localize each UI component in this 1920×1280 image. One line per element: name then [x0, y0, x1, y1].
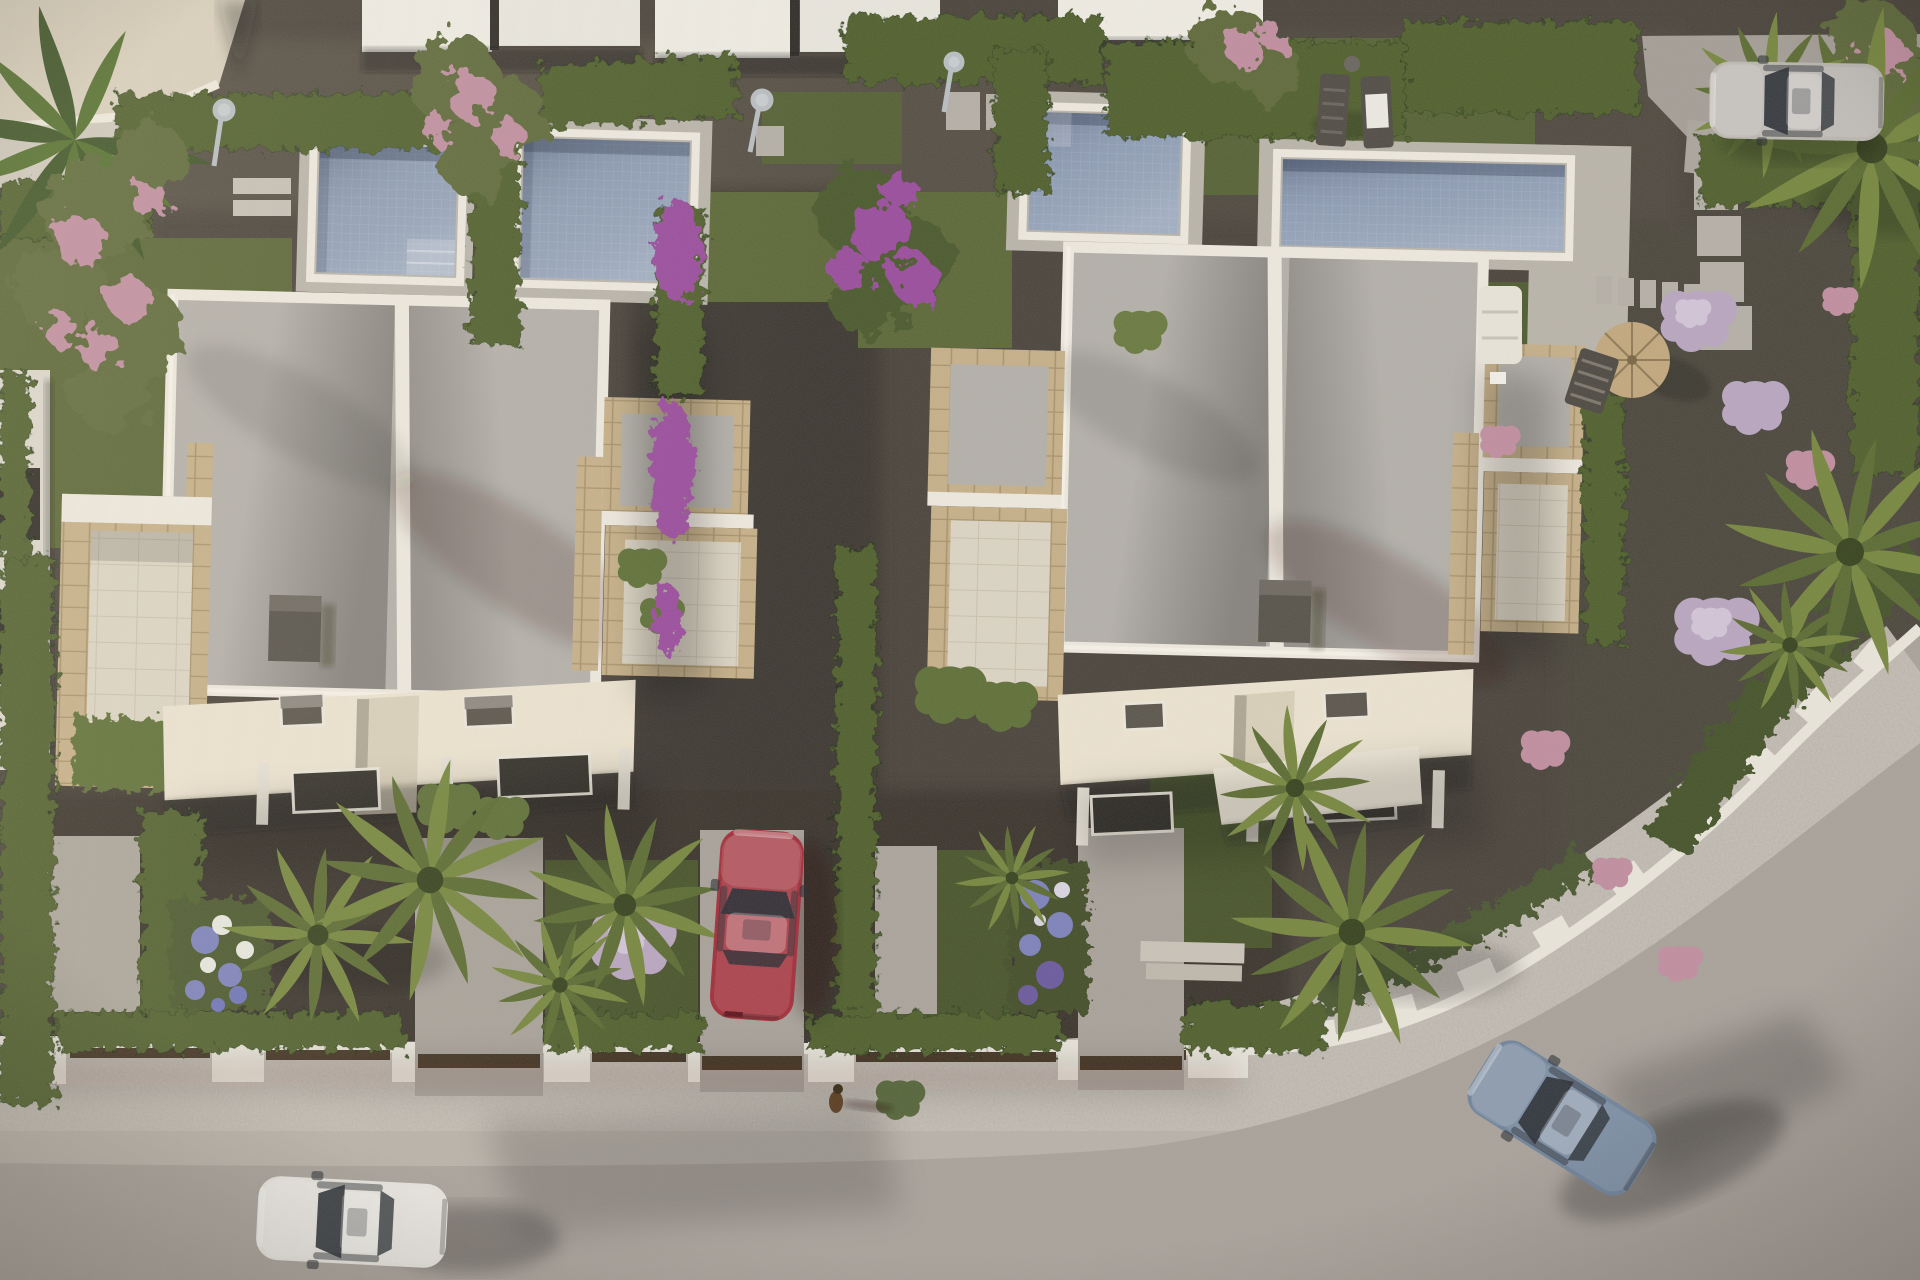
- aerial-render-page: [0, 0, 1920, 1280]
- vignette: [0, 0, 1920, 1280]
- aerial-render-canvas: [0, 0, 1920, 1280]
